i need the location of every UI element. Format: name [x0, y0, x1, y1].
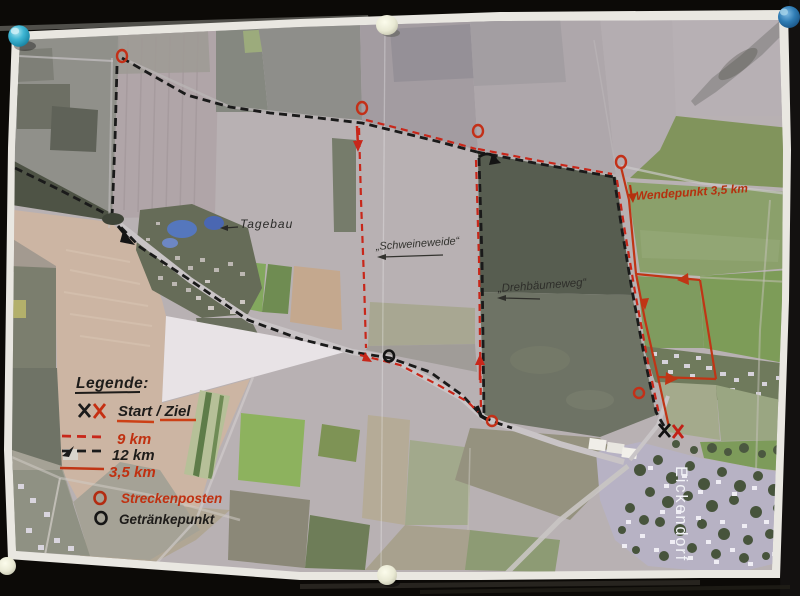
svg-text:9 km: 9 km — [117, 431, 151, 448]
svg-text:Legende:: Legende: — [76, 375, 149, 392]
svg-text:Streckenposten: Streckenposten — [121, 491, 222, 506]
svg-text:Getränkepunkt: Getränkepunkt — [119, 512, 215, 527]
svg-text:Eickendorf: Eickendorf — [672, 466, 690, 562]
svg-text:Tagebau: Tagebau — [240, 217, 293, 231]
svg-text:3,5 km: 3,5 km — [109, 464, 156, 481]
svg-text:Start / Ziel: Start / Ziel — [118, 403, 191, 420]
svg-text:12 km: 12 km — [112, 447, 155, 464]
